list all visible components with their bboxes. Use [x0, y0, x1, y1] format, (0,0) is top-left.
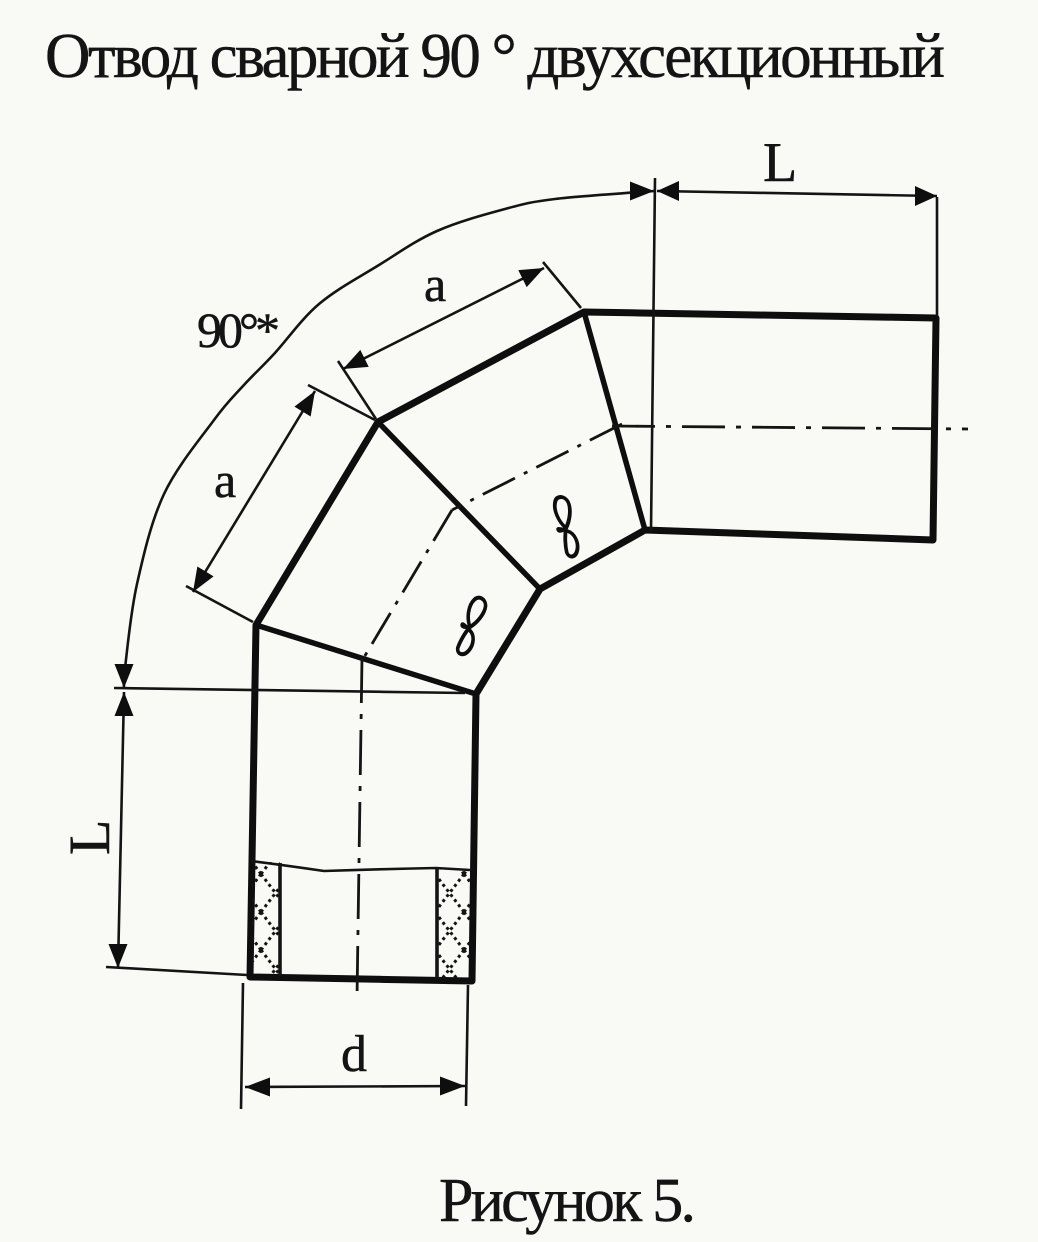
svg-text:Рисунок 5.: Рисунок 5. — [439, 1167, 696, 1235]
svg-text:d: d — [341, 1026, 367, 1083]
svg-text:L: L — [763, 132, 797, 194]
svg-text:a: a — [214, 452, 236, 508]
svg-text:a: a — [424, 256, 446, 312]
svg-text:Отвод сварной 90 ° двухсекцион: Отвод сварной 90 ° двухсекционный — [45, 21, 945, 91]
svg-text:90°*: 90°* — [197, 302, 280, 358]
svg-text:L: L — [57, 820, 122, 855]
